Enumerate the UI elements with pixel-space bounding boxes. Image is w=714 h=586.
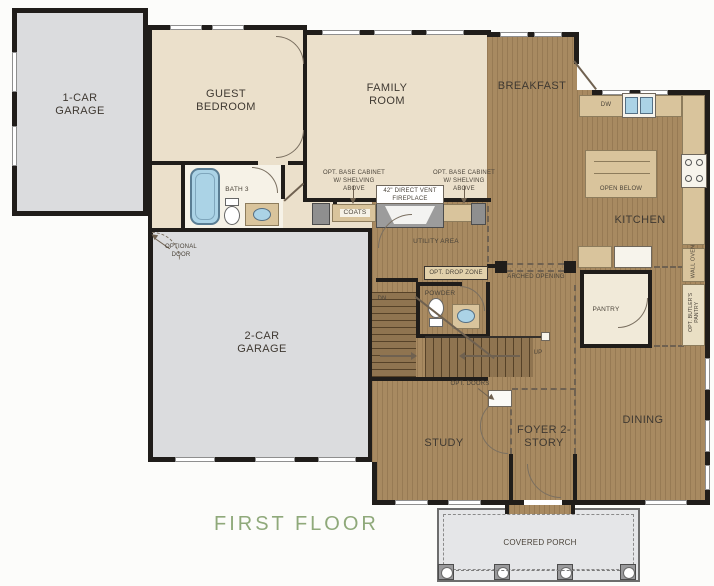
kitchen-base-cabinet-south [578, 246, 612, 268]
dining-dash-upper [574, 285, 576, 385]
label-coats: COATS [340, 209, 370, 217]
bathtub-icon [190, 168, 220, 225]
window [212, 25, 244, 30]
label-covered-porch: COVERED PORCH [496, 538, 584, 548]
stair-newel [541, 332, 550, 341]
stairs-arrow-dn [380, 355, 412, 357]
window [318, 457, 356, 462]
label-garage1: 1-CAR GARAGE [42, 92, 118, 118]
label-kitchen: KITCHEN [608, 214, 672, 227]
label-butlers-pantry: OPT. BUTLER'S PANTRY [688, 284, 701, 340]
wall-bath-right [281, 165, 285, 199]
window [500, 32, 528, 37]
label-wall-oven: WALL OVEN [691, 243, 698, 279]
stairs-arrow-up-head [459, 352, 465, 360]
window [645, 500, 687, 505]
porch-column-icon [557, 564, 573, 580]
butler-dash-bottom [654, 345, 684, 347]
range-icon [681, 154, 707, 188]
utility-cased-opening [487, 206, 489, 262]
porch-column-icon [438, 564, 454, 580]
arched-post-right [564, 261, 576, 273]
label-dn: DN [374, 296, 390, 304]
stairs-arrow-up [465, 355, 520, 357]
foyer-dash-top [512, 388, 576, 390]
window [255, 457, 295, 462]
window [12, 126, 17, 166]
porch-rail-dashes [456, 570, 620, 571]
wall-kitchen-south [487, 264, 497, 268]
window [322, 30, 360, 35]
window [170, 25, 202, 30]
wall-utility-dropzone [376, 278, 418, 282]
label-up: UP [530, 350, 546, 358]
label-powder: POWDER [420, 290, 460, 298]
kitchen-sink-icon [622, 93, 656, 118]
arched-opening-dash-bottom [507, 270, 564, 272]
label-dining: DINING [610, 414, 676, 427]
window [448, 500, 481, 505]
label-dw: DW [596, 102, 616, 110]
window [705, 420, 710, 452]
stairs-down [372, 292, 416, 377]
wall-house-left [148, 25, 152, 228]
wall-foyer-left [509, 454, 513, 500]
floor-plan: 1-CAR GARAGE GUEST BEDROOM BATH 3 COATS … [0, 0, 714, 586]
wall-dining-left [573, 454, 577, 500]
kitchen-cabinet-south [614, 246, 652, 268]
wall-breakfast-right [574, 32, 579, 64]
label-guest-bedroom: GUEST BEDROOM [183, 88, 269, 114]
label-study: STUDY [414, 437, 474, 450]
label-bath3: BATH 3 [222, 186, 252, 194]
label-opt-doors: OPT. DOORS [448, 381, 492, 389]
stairs-arrow-dn-head [411, 352, 417, 360]
label-fireplace: 42" DIRECT VENT FIREPLACE [378, 188, 442, 204]
plan-title: FIRST FLOOR [214, 513, 379, 536]
window [705, 358, 710, 390]
window [534, 32, 562, 37]
label-arched-opening: ARCHED OPENING [504, 274, 568, 282]
label-foyer: FOYER 2-STORY [508, 424, 580, 450]
arrow-cabinet-left-head [350, 198, 356, 204]
entry-stoop [505, 505, 575, 514]
cabinet-gray-left [312, 203, 330, 225]
cabinet-gray-right [471, 203, 486, 225]
label-opt-base-cabinet-left: OPT. BASE CABINET W/ SHELVING ABOVE [322, 170, 386, 193]
window [705, 465, 710, 490]
front-door-opening [524, 500, 562, 505]
window [395, 500, 428, 505]
toilet-bath3-icon [224, 198, 240, 226]
label-optional-door: OPTIONAL DOOR [158, 244, 204, 260]
label-family: FAMILY ROOM [355, 82, 419, 108]
porch-column-icon [494, 564, 510, 580]
wall-bedroom-bottom [148, 161, 258, 165]
window [175, 457, 215, 462]
butler-dash-top [654, 266, 684, 268]
label-breakfast: BREAKFAST [489, 80, 575, 93]
wall-study-left [372, 462, 377, 505]
window [12, 52, 17, 92]
label-utility: UTILITY AREA [406, 238, 466, 246]
opt-base-cabinet-right [443, 204, 473, 222]
wall-powder-top [416, 282, 462, 286]
wall-powder-right [486, 282, 490, 338]
window [426, 30, 464, 35]
wall-bath-left [181, 165, 185, 228]
label-open-below: OPEN BELOW [593, 186, 649, 194]
porch-column-icon [620, 564, 636, 580]
label-drop-zone: OPT. DROP ZONE [426, 270, 486, 278]
arrow-cabinet-right-head [461, 198, 467, 204]
arched-opening-dash-top [507, 263, 564, 265]
stairs-up [425, 338, 533, 377]
window [374, 30, 412, 35]
label-garage2: 2-CAR GARAGE [222, 330, 302, 356]
label-pantry: PANTRY [586, 306, 626, 314]
bath3-vanity [245, 203, 279, 226]
